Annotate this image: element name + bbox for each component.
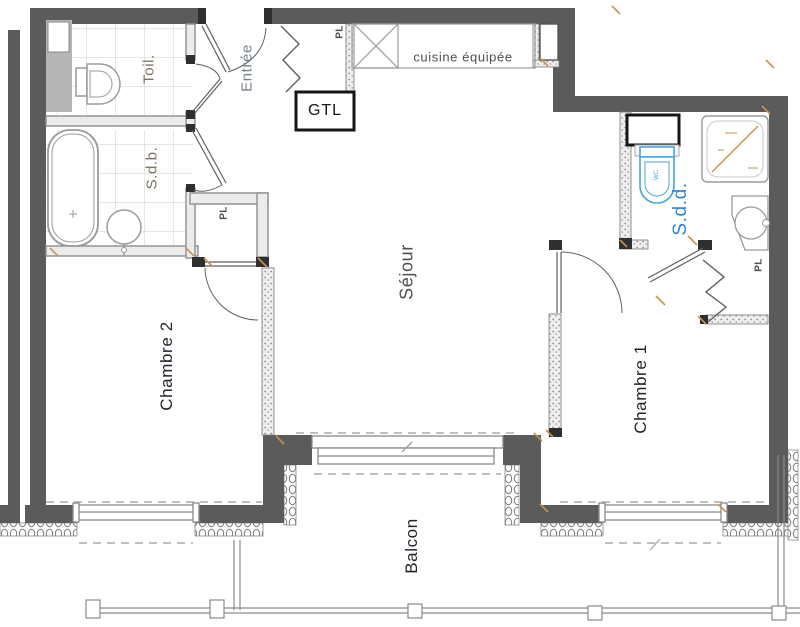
floorplan-drawing <box>0 0 800 627</box>
closet-label-bath: PL <box>219 206 230 219</box>
hall-door <box>557 252 622 313</box>
partition-walls <box>262 24 768 435</box>
floor-plan: Toil. S.d.b. Entrée PL GTL cuisine équip… <box>0 0 800 627</box>
closet-label-entry: PL <box>335 25 346 38</box>
room-label-toilet: Toil. <box>141 54 158 84</box>
room-label-entree: Entrée <box>239 44 256 92</box>
toilet-duct <box>46 20 72 112</box>
bedroom2-door <box>205 262 258 320</box>
shower-tray <box>702 116 768 182</box>
room-label-living: Séjour <box>397 244 418 300</box>
windows <box>73 436 727 522</box>
room-label-bedroom1: Chambre 1 <box>631 344 651 434</box>
shower-room-door <box>648 248 705 282</box>
toilet-door <box>193 64 222 113</box>
room-label-bathroom: S.d.b. <box>144 147 161 190</box>
closet-label-hall: PL <box>754 258 765 271</box>
entrance-door <box>202 24 266 72</box>
wc-label: WC <box>654 170 660 180</box>
room-label-bedroom2: Chambre 2 <box>157 321 177 411</box>
bathroom-door <box>192 128 226 191</box>
entry-closet-folding-door <box>281 26 300 92</box>
balcony-railing <box>86 455 800 620</box>
bathtub <box>48 130 98 246</box>
room-label-kitchen: cuisine équipée <box>413 50 512 65</box>
room-label-balcony: Balcon <box>402 518 422 574</box>
room-label-shower-room: S.d.d. <box>670 182 692 235</box>
washbasin-shower-room <box>732 196 770 250</box>
hall-closet-folding-door <box>703 260 726 322</box>
gtl-label: GTL <box>308 102 342 120</box>
kitchen-niche <box>540 24 558 60</box>
